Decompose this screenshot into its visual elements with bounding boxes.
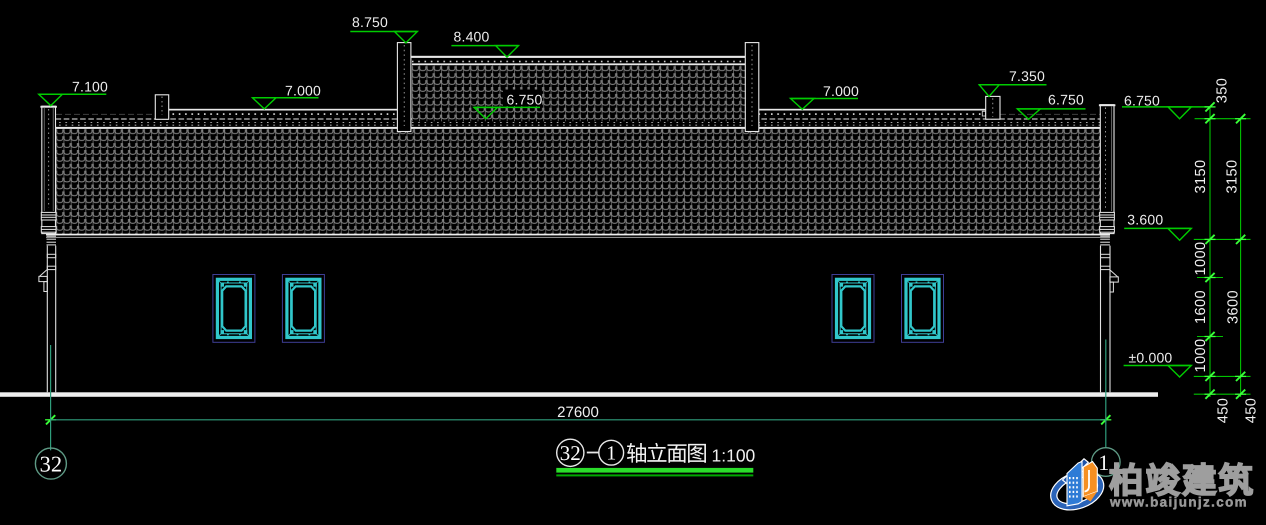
svg-text:1: 1 bbox=[1098, 450, 1109, 475]
svg-text:7.000: 7.000 bbox=[823, 83, 859, 99]
svg-text:www.baijunjz.com: www.baijunjz.com bbox=[1109, 495, 1248, 510]
svg-text:3150: 3150 bbox=[1224, 159, 1240, 193]
svg-text:32: 32 bbox=[40, 452, 63, 477]
svg-text:轴立面图: 轴立面图 bbox=[626, 442, 706, 466]
svg-text:±0.000: ±0.000 bbox=[1129, 350, 1173, 366]
svg-text:7.100: 7.100 bbox=[72, 79, 108, 95]
svg-text:6.750: 6.750 bbox=[507, 92, 543, 108]
svg-text:7.350: 7.350 bbox=[1009, 68, 1045, 84]
svg-text:1:100: 1:100 bbox=[712, 446, 756, 466]
svg-text:3600: 3600 bbox=[1225, 290, 1241, 324]
svg-text:350: 350 bbox=[1215, 78, 1231, 104]
svg-text:32: 32 bbox=[560, 441, 581, 465]
svg-text:1000: 1000 bbox=[1193, 338, 1209, 372]
svg-text:8.750: 8.750 bbox=[352, 14, 388, 30]
svg-text:1: 1 bbox=[606, 443, 616, 465]
svg-text:450: 450 bbox=[1216, 398, 1232, 424]
svg-text:6.750: 6.750 bbox=[1124, 93, 1160, 109]
svg-text:7.000: 7.000 bbox=[285, 83, 321, 99]
svg-text:1000: 1000 bbox=[1193, 241, 1209, 275]
svg-text:1600: 1600 bbox=[1193, 290, 1209, 324]
svg-text:27600: 27600 bbox=[557, 404, 599, 421]
svg-text:3150: 3150 bbox=[1193, 159, 1209, 193]
svg-text:6.750: 6.750 bbox=[1048, 91, 1084, 107]
svg-text:8.400: 8.400 bbox=[454, 29, 490, 45]
svg-text:450: 450 bbox=[1244, 398, 1260, 424]
svg-text:3.600: 3.600 bbox=[1127, 212, 1163, 228]
